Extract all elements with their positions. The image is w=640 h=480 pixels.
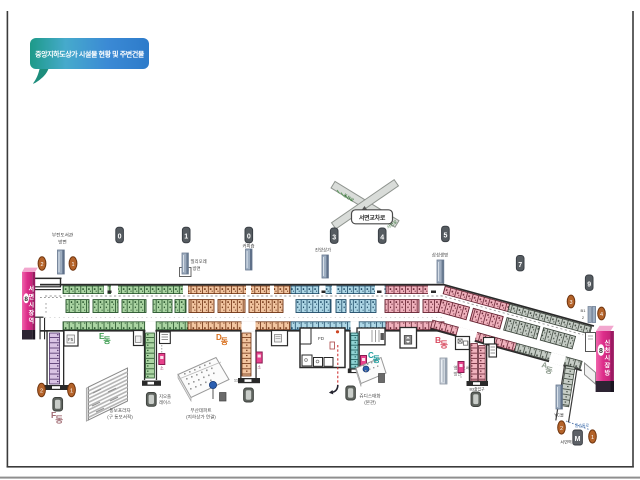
svg-text:0: 0 [118,234,122,241]
svg-text:소: 소 [160,366,164,371]
svg-text:YC몰: YC몰 [554,413,564,418]
svg-text:삼성생명: 삼성생명 [432,252,448,258]
svg-text:장: 장 [605,362,611,370]
svg-text:천: 천 [605,347,611,355]
svg-text:부산데파트: 부산데파트 [190,407,211,414]
svg-text:방면: 방면 [58,239,66,245]
svg-text:(본관): (본관) [364,399,376,405]
svg-text:장: 장 [29,309,35,317]
svg-text:(구 동보서적): (구 동보서적) [107,414,133,421]
svg-text:0: 0 [247,234,251,241]
svg-text:진양상가: 진양상가 [315,247,331,254]
svg-text:B1: B1 [581,308,587,313]
svg-text:1: 1 [70,389,73,395]
svg-text:밀리오레: 밀리오레 [191,258,207,265]
svg-text:F5: F5 [68,337,74,342]
svg-text:FD: FD [318,336,325,341]
svg-text:서면교차로: 서면교차로 [359,214,386,222]
svg-text:2: 2 [560,426,563,432]
svg-text:커피숍: 커피숍 [242,243,254,250]
svg-text:지오플: 지오플 [159,393,171,400]
svg-text:M: M [575,436,581,443]
svg-text:부전도서관: 부전도서관 [52,232,74,239]
svg-text:B3출입구: B3출입구 [469,387,485,392]
svg-text:방면: 방면 [193,265,201,271]
svg-text:4: 4 [600,312,603,318]
svg-text:5: 5 [443,233,447,240]
svg-text:2: 2 [40,262,43,268]
svg-text:9: 9 [587,281,591,288]
svg-text:쥬디스태화: 쥬디스태화 [359,393,381,400]
svg-text:3: 3 [332,234,336,241]
svg-text:서: 서 [29,285,35,293]
svg-text:면: 면 [29,293,35,301]
svg-text:시: 시 [29,302,35,309]
svg-text:방: 방 [605,369,611,377]
svg-text:1: 1 [591,435,594,441]
svg-text:동보프라자: 동보프라자 [109,407,131,414]
svg-text:1: 1 [184,234,188,241]
svg-text:(지하상가 연결): (지하상가 연결) [186,414,216,421]
svg-text:시: 시 [605,355,611,362]
svg-text:1: 1 [71,262,74,268]
svg-text:2: 2 [40,389,43,395]
svg-text:신: 신 [605,339,611,347]
svg-text:3: 3 [569,300,572,306]
svg-text:레이스: 레이스 [159,399,171,406]
svg-text:환승통로: 환승통로 [575,423,589,428]
svg-text:8: 8 [599,348,603,355]
svg-text:서면역: 서면역 [560,439,572,446]
svg-text:4: 4 [380,234,384,241]
svg-text:중앙지하도상가 시설물 현황 및 주변건물: 중앙지하도상가 시설물 현황 및 주변건물 [35,50,145,59]
svg-text:7: 7 [518,262,522,269]
svg-text:소: 소 [257,365,261,370]
svg-text:역: 역 [29,317,35,325]
